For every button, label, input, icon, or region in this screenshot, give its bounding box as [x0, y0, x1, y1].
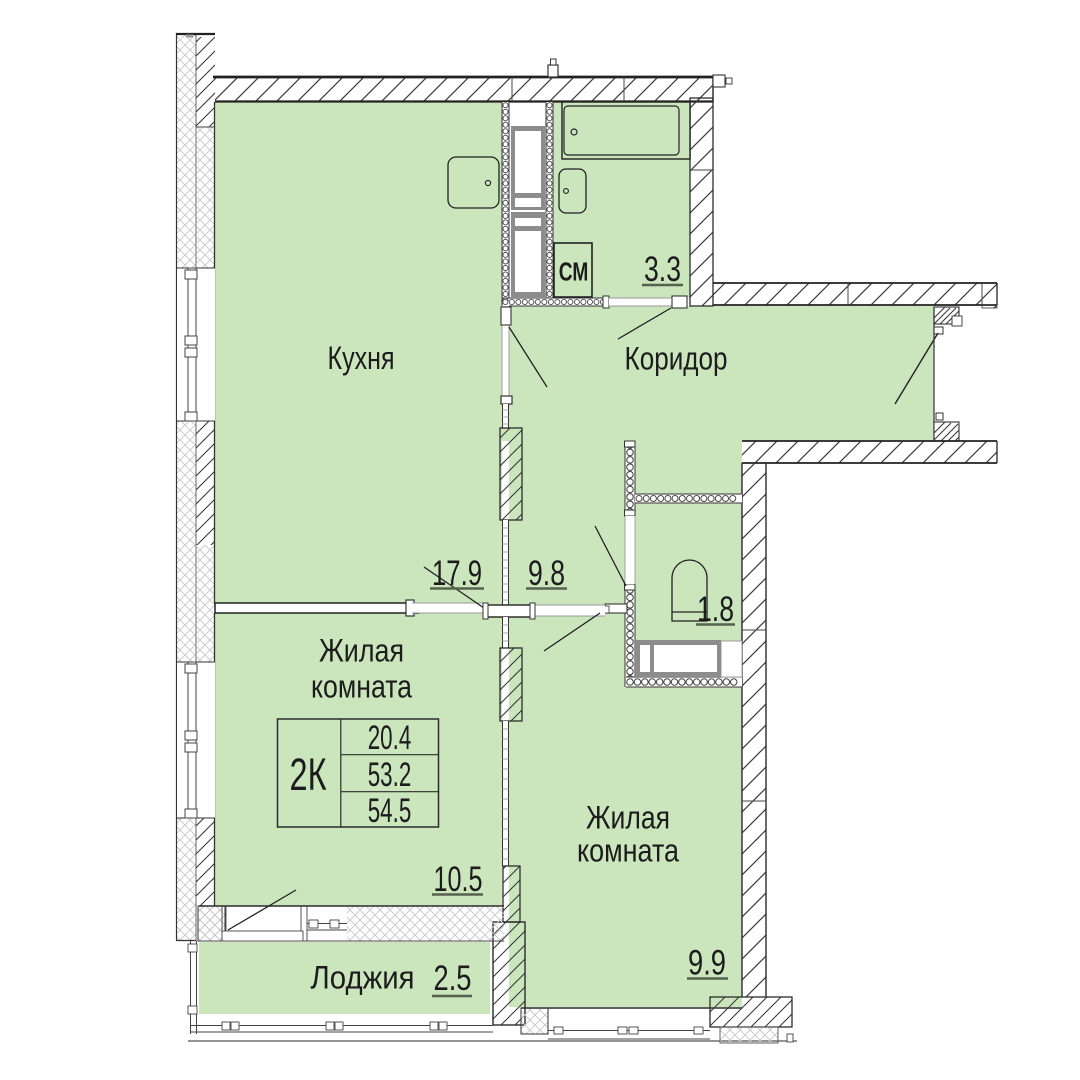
svg-text:комната: комната	[311, 669, 412, 705]
svg-text:Лоджия: Лоджия	[311, 960, 415, 996]
svg-text:1.8: 1.8	[697, 590, 734, 629]
svg-text:9.9: 9.9	[688, 944, 726, 983]
svg-text:комната: комната	[577, 833, 679, 869]
svg-text:Кухня: Кухня	[328, 340, 395, 376]
svg-text:СМ: СМ	[559, 257, 589, 287]
svg-text:20.4: 20.4	[368, 719, 412, 757]
svg-text:Жилая: Жилая	[319, 633, 404, 669]
svg-text:2.5: 2.5	[434, 959, 472, 998]
svg-text:54.5: 54.5	[368, 792, 412, 830]
svg-text:17.9: 17.9	[432, 554, 482, 593]
svg-text:2К: 2К	[290, 749, 327, 800]
svg-text:Жилая: Жилая	[586, 800, 670, 836]
svg-text:9.8: 9.8	[528, 554, 565, 593]
svg-text:10.5: 10.5	[434, 860, 483, 899]
svg-text:53.2: 53.2	[368, 756, 412, 794]
svg-text:3.3: 3.3	[644, 250, 681, 289]
svg-text:Коридор: Коридор	[625, 341, 728, 377]
